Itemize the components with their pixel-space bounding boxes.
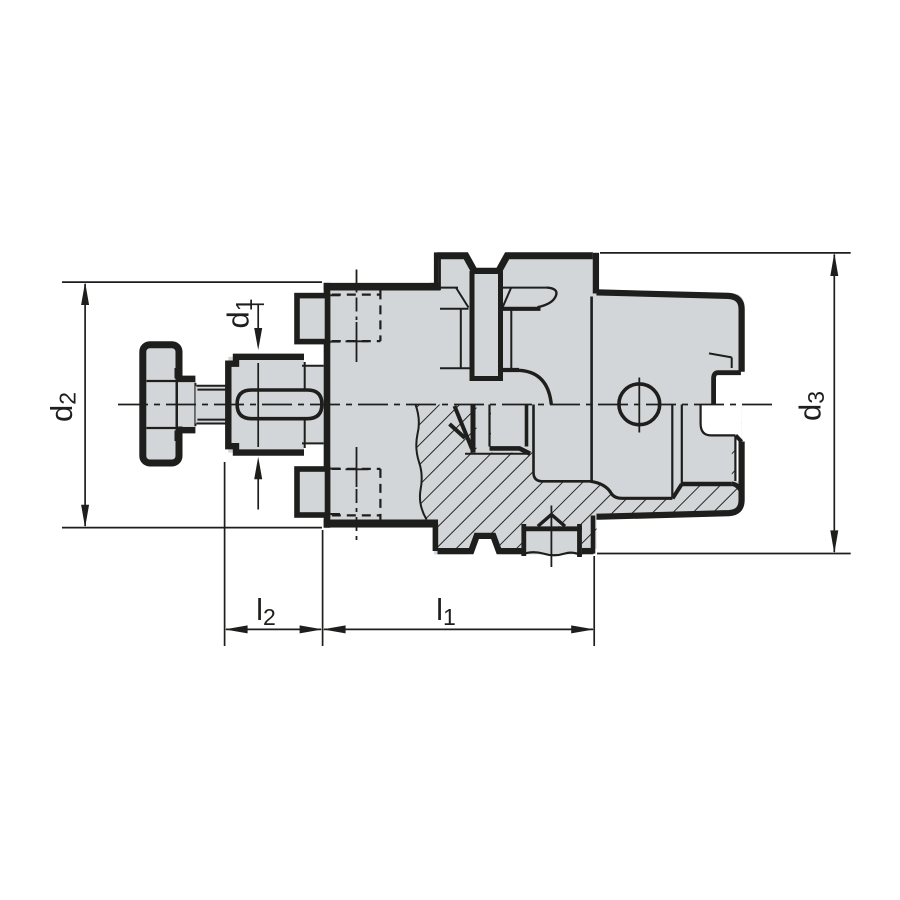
svg-text:l1: l1 [436, 592, 456, 630]
svg-text:d2: d2 [44, 392, 80, 422]
svg-text:d3: d3 [793, 391, 829, 421]
svg-text:d1: d1 [221, 298, 257, 328]
svg-text:l2: l2 [256, 592, 276, 630]
